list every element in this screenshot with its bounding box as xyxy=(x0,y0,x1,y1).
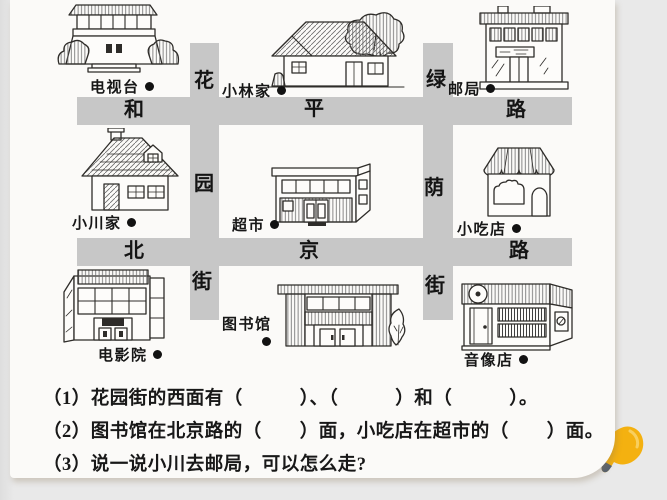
label-library: 图书馆 xyxy=(222,313,272,334)
street-char-lvyin-3: 街 xyxy=(425,276,445,296)
label-text: 小川家 xyxy=(72,212,122,233)
label-text: 电视台 xyxy=(90,76,140,97)
label-text: 图书馆 xyxy=(222,313,272,334)
worksheet-sheet: 和 平 路 北 京 路 花 园 街 绿 荫 街 xyxy=(10,0,615,478)
place-marker xyxy=(512,224,521,233)
question-2: （2）图书馆在北京路的（ ）面，小吃店在超市的（ ）面。 xyxy=(43,421,604,443)
cinema-illustration xyxy=(60,268,168,346)
label-text: 小林家 xyxy=(222,80,272,101)
label-text: 超市 xyxy=(232,214,265,235)
supermarket-illustration xyxy=(270,162,372,228)
place-marker xyxy=(153,350,162,359)
label-text: 音像店 xyxy=(464,349,514,370)
street-char-huayuan-1: 花 xyxy=(194,71,214,91)
place-marker xyxy=(486,84,495,93)
label-tv-station: 电视台 xyxy=(90,76,154,97)
question-1: （1）花园街的西面有（ ）、（ ）和（ ）。 xyxy=(43,388,538,410)
street-char-heping-3: 路 xyxy=(506,100,526,120)
worksheet-photo: 和 平 路 北 京 路 花 园 街 绿 荫 街 xyxy=(0,0,667,500)
place-marker xyxy=(270,220,279,229)
street-char-lvyin-2: 荫 xyxy=(424,178,444,198)
label-xiaochuan-home: 小川家 xyxy=(72,212,136,233)
label-text: 邮局 xyxy=(448,78,481,99)
tv-station-illustration xyxy=(56,2,180,78)
place-marker xyxy=(277,86,286,95)
street-char-heping-2: 平 xyxy=(304,99,324,119)
snack-shop-illustration xyxy=(476,144,562,222)
label-supermarket: 超市 xyxy=(232,214,279,235)
xiaochuan-home-illustration xyxy=(80,128,180,216)
place-marker xyxy=(145,82,154,91)
label-text: 电影院 xyxy=(98,344,148,365)
street-char-heping-1: 和 xyxy=(124,100,144,120)
street-char-huayuan-3: 街 xyxy=(192,272,212,292)
question-3: （3）说一说小川去邮局，可以怎么走? xyxy=(43,454,367,476)
place-marker-library xyxy=(262,337,271,346)
label-xiaolin-home: 小林家 xyxy=(222,80,286,101)
label-cinema: 电影院 xyxy=(98,344,162,365)
av-store-illustration xyxy=(456,282,578,352)
xiaolin-home-illustration xyxy=(266,10,408,92)
street-heping-road-band xyxy=(77,97,572,125)
street-char-huayuan-2: 园 xyxy=(194,174,214,194)
library-illustration xyxy=(276,281,408,351)
label-av-store: 音像店 xyxy=(464,349,528,370)
street-char-lvyin-1: 绿 xyxy=(426,70,446,90)
map-area: 和 平 路 北 京 路 花 园 街 绿 荫 街 xyxy=(10,0,615,380)
place-marker xyxy=(127,218,136,227)
street-char-beijing-3: 路 xyxy=(509,241,529,261)
street-beijing-road-band xyxy=(77,238,572,266)
label-post-office: 邮局 xyxy=(448,78,495,99)
street-char-beijing-1: 北 xyxy=(124,241,144,261)
street-char-beijing-2: 京 xyxy=(299,241,319,261)
place-marker xyxy=(519,355,528,364)
label-snack-shop: 小吃店 xyxy=(457,218,521,239)
label-text: 小吃店 xyxy=(457,218,507,239)
